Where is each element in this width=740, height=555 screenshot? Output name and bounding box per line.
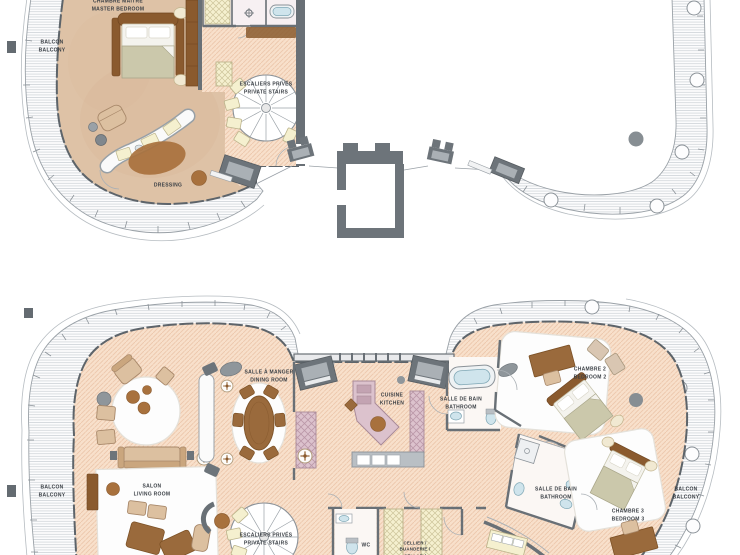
pillow bbox=[126, 27, 147, 38]
spiral-stairs-upper bbox=[224, 75, 299, 147]
sideboard bbox=[87, 474, 98, 510]
balcony-band-terrace bbox=[498, 0, 707, 214]
stool bbox=[89, 123, 98, 132]
deck-table bbox=[544, 193, 558, 207]
glass-line bbox=[256, 166, 292, 184]
island-stool bbox=[371, 417, 386, 432]
hall-mat bbox=[246, 27, 296, 38]
upper-terrace bbox=[497, 0, 713, 219]
duvet bbox=[122, 46, 174, 78]
central-core bbox=[285, 135, 525, 238]
coffee-table bbox=[127, 391, 140, 404]
bathtub-small-basin bbox=[273, 8, 291, 16]
coffee-table bbox=[143, 386, 152, 395]
floor-medallion bbox=[221, 453, 233, 465]
deck-table bbox=[690, 73, 704, 87]
edge-marker bbox=[24, 308, 33, 318]
deck-table bbox=[585, 300, 599, 314]
deck-table bbox=[687, 1, 701, 15]
pouf bbox=[645, 461, 657, 471]
wardrobe bbox=[186, 0, 198, 86]
cellar-closet bbox=[421, 509, 442, 555]
master-bed bbox=[112, 8, 188, 86]
upper-bathroom bbox=[203, 0, 300, 26]
ottoman bbox=[147, 504, 166, 519]
floor-plan-page: CHAMBRE MAITRE MASTER BEDROOM BALCON BAL… bbox=[0, 0, 740, 555]
stool bbox=[397, 376, 405, 384]
wall bbox=[198, 0, 202, 90]
deck-table bbox=[685, 447, 699, 461]
round-ottoman bbox=[107, 483, 120, 496]
chair bbox=[96, 405, 115, 421]
bathtub bbox=[448, 364, 495, 389]
sink bbox=[339, 516, 349, 522]
coffee-table bbox=[138, 402, 150, 414]
elevator-core bbox=[337, 143, 404, 238]
sofa bbox=[110, 447, 194, 468]
ottoman bbox=[127, 500, 146, 515]
cellar-closet bbox=[384, 509, 403, 555]
sink bbox=[451, 412, 462, 420]
edge-marker bbox=[7, 485, 16, 497]
deck-table bbox=[675, 145, 689, 159]
divider-cabinet bbox=[199, 374, 214, 462]
edge-marker bbox=[7, 41, 16, 53]
pillow bbox=[149, 27, 170, 38]
column bbox=[629, 393, 643, 407]
terrace-column bbox=[629, 132, 644, 147]
core-pillar-right bbox=[427, 139, 456, 165]
floor-medallion bbox=[298, 449, 312, 463]
deck-table bbox=[686, 519, 700, 533]
dining-table bbox=[244, 396, 274, 450]
floor-plan-drawing bbox=[0, 0, 740, 555]
stool bbox=[96, 135, 107, 146]
closet bbox=[205, 0, 230, 24]
round-ottoman bbox=[192, 171, 207, 186]
closet bbox=[216, 62, 232, 86]
upper-plan bbox=[7, 0, 305, 241]
pouf bbox=[602, 437, 614, 447]
lower-plan bbox=[7, 296, 721, 555]
deck-table bbox=[650, 199, 664, 213]
side-table bbox=[97, 392, 111, 406]
chair bbox=[96, 429, 115, 445]
terrace-door-link bbox=[468, 148, 525, 185]
pantry-cabinet bbox=[410, 391, 424, 453]
floor-medallion bbox=[221, 380, 233, 392]
